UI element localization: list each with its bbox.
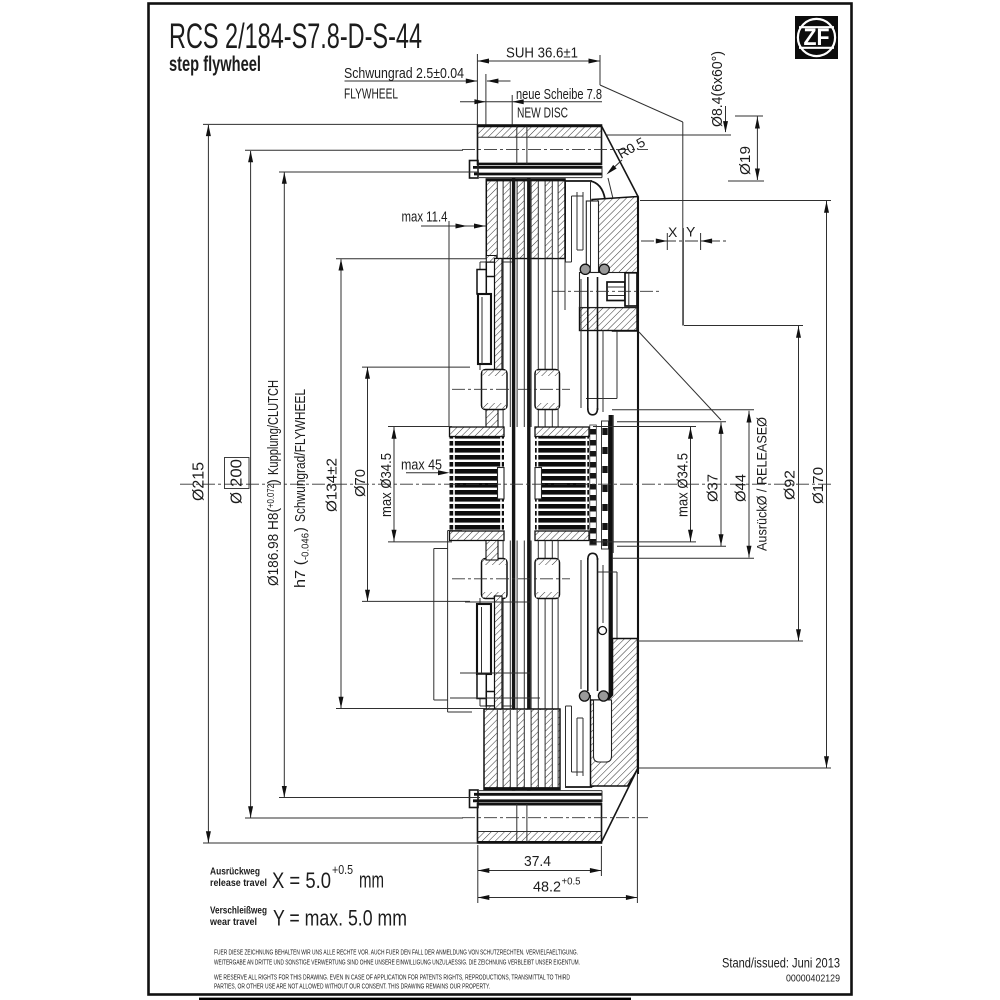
svg-text:h7 (: h7 ( bbox=[293, 560, 309, 588]
svg-text:wear travel: wear travel bbox=[209, 916, 257, 928]
svg-text:Y = max. 5.0 mm: Y = max. 5.0 mm bbox=[273, 906, 407, 931]
svg-text:AusrückØ / RELEASEØ: AusrückØ / RELEASEØ bbox=[754, 417, 770, 551]
svg-text:+0.072: +0.072 bbox=[266, 484, 277, 508]
svg-text:+0.5: +0.5 bbox=[332, 863, 353, 877]
svg-text:): ) bbox=[293, 527, 309, 532]
svg-text:Ø186.98 H8(: Ø186.98 H8( bbox=[266, 508, 282, 586]
svg-text:Y: Y bbox=[686, 224, 696, 240]
svg-text:Verschleißweg: Verschleißweg bbox=[210, 905, 267, 917]
svg-text:+0.5: +0.5 bbox=[562, 877, 581, 888]
svg-text:Ø8.4(6x60°): Ø8.4(6x60°) bbox=[710, 51, 726, 127]
svg-text:X = 5.0: X = 5.0 bbox=[272, 868, 331, 893]
svg-text:00000402129: 00000402129 bbox=[786, 973, 840, 985]
svg-text:neue Scheibe 7.8: neue Scheibe 7.8 bbox=[516, 86, 602, 103]
svg-text:Ø44: Ø44 bbox=[733, 474, 750, 502]
svg-text:WE RESERVE ALL RIGHTS FOR THIS: WE RESERVE ALL RIGHTS FOR THIS DRAWING. … bbox=[214, 973, 570, 982]
svg-text:NEW DISC: NEW DISC bbox=[517, 105, 568, 122]
svg-text:ZF: ZF bbox=[804, 24, 830, 51]
svg-text:FUER DIESE ZEICHNUNG BEHALTEN: FUER DIESE ZEICHNUNG BEHALTEN WIR UNS AL… bbox=[214, 948, 578, 957]
svg-text:max Ø34.5: max Ø34.5 bbox=[378, 453, 395, 517]
svg-text:Ø: Ø bbox=[229, 492, 246, 504]
svg-text:Ø134±2: Ø134±2 bbox=[324, 458, 341, 512]
svg-text:max 11.4: max 11.4 bbox=[402, 209, 448, 226]
svg-text:Schwungrad/FLYWHEEL: Schwungrad/FLYWHEEL bbox=[293, 389, 309, 522]
svg-text:max Ø34.5: max Ø34.5 bbox=[675, 453, 692, 517]
svg-text:Ø37: Ø37 bbox=[705, 474, 722, 502]
svg-text:SUH 36.6±1: SUH 36.6±1 bbox=[506, 45, 578, 62]
svg-text:WEITERGABE AN DRITTE UND SONST: WEITERGABE AN DRITTE UND SONSTIGE VERWER… bbox=[214, 958, 580, 967]
svg-text:Ø70: Ø70 bbox=[352, 469, 369, 497]
svg-text:48.2: 48.2 bbox=[533, 879, 561, 896]
svg-text:Kupplung/CLUTCH: Kupplung/CLUTCH bbox=[266, 380, 282, 475]
svg-text:-0.046: -0.046 bbox=[301, 533, 312, 560]
svg-text:Schwungrad 2.5±0.04: Schwungrad 2.5±0.04 bbox=[344, 65, 464, 82]
svg-text:step flywheel: step flywheel bbox=[169, 52, 261, 76]
svg-text:Ø170: Ø170 bbox=[810, 467, 827, 504]
svg-text:mm: mm bbox=[359, 868, 384, 893]
svg-text:RCS 2/184-S7.8-D-S-44: RCS 2/184-S7.8-D-S-44 bbox=[169, 17, 422, 56]
svg-text:FLYWHEEL: FLYWHEEL bbox=[344, 86, 398, 103]
svg-text:PARTIES, OR OTHER USE ARE NOT: PARTIES, OR OTHER USE ARE NOT ALLOWED WI… bbox=[214, 982, 490, 991]
svg-text:Ausrückweg: Ausrückweg bbox=[210, 866, 260, 878]
svg-text:release travel: release travel bbox=[210, 877, 267, 889]
svg-text:X: X bbox=[668, 224, 678, 240]
svg-text:Ø19: Ø19 bbox=[738, 146, 754, 175]
svg-text:): ) bbox=[266, 479, 282, 484]
svg-text:max 45: max 45 bbox=[401, 457, 442, 474]
svg-text:37.4: 37.4 bbox=[524, 853, 551, 870]
svg-text:200: 200 bbox=[229, 459, 246, 487]
svg-text:Ø215: Ø215 bbox=[191, 462, 208, 501]
svg-text:Stand/issued: Juni 2013: Stand/issued: Juni 2013 bbox=[722, 955, 840, 971]
svg-text:Ø92: Ø92 bbox=[782, 470, 799, 500]
